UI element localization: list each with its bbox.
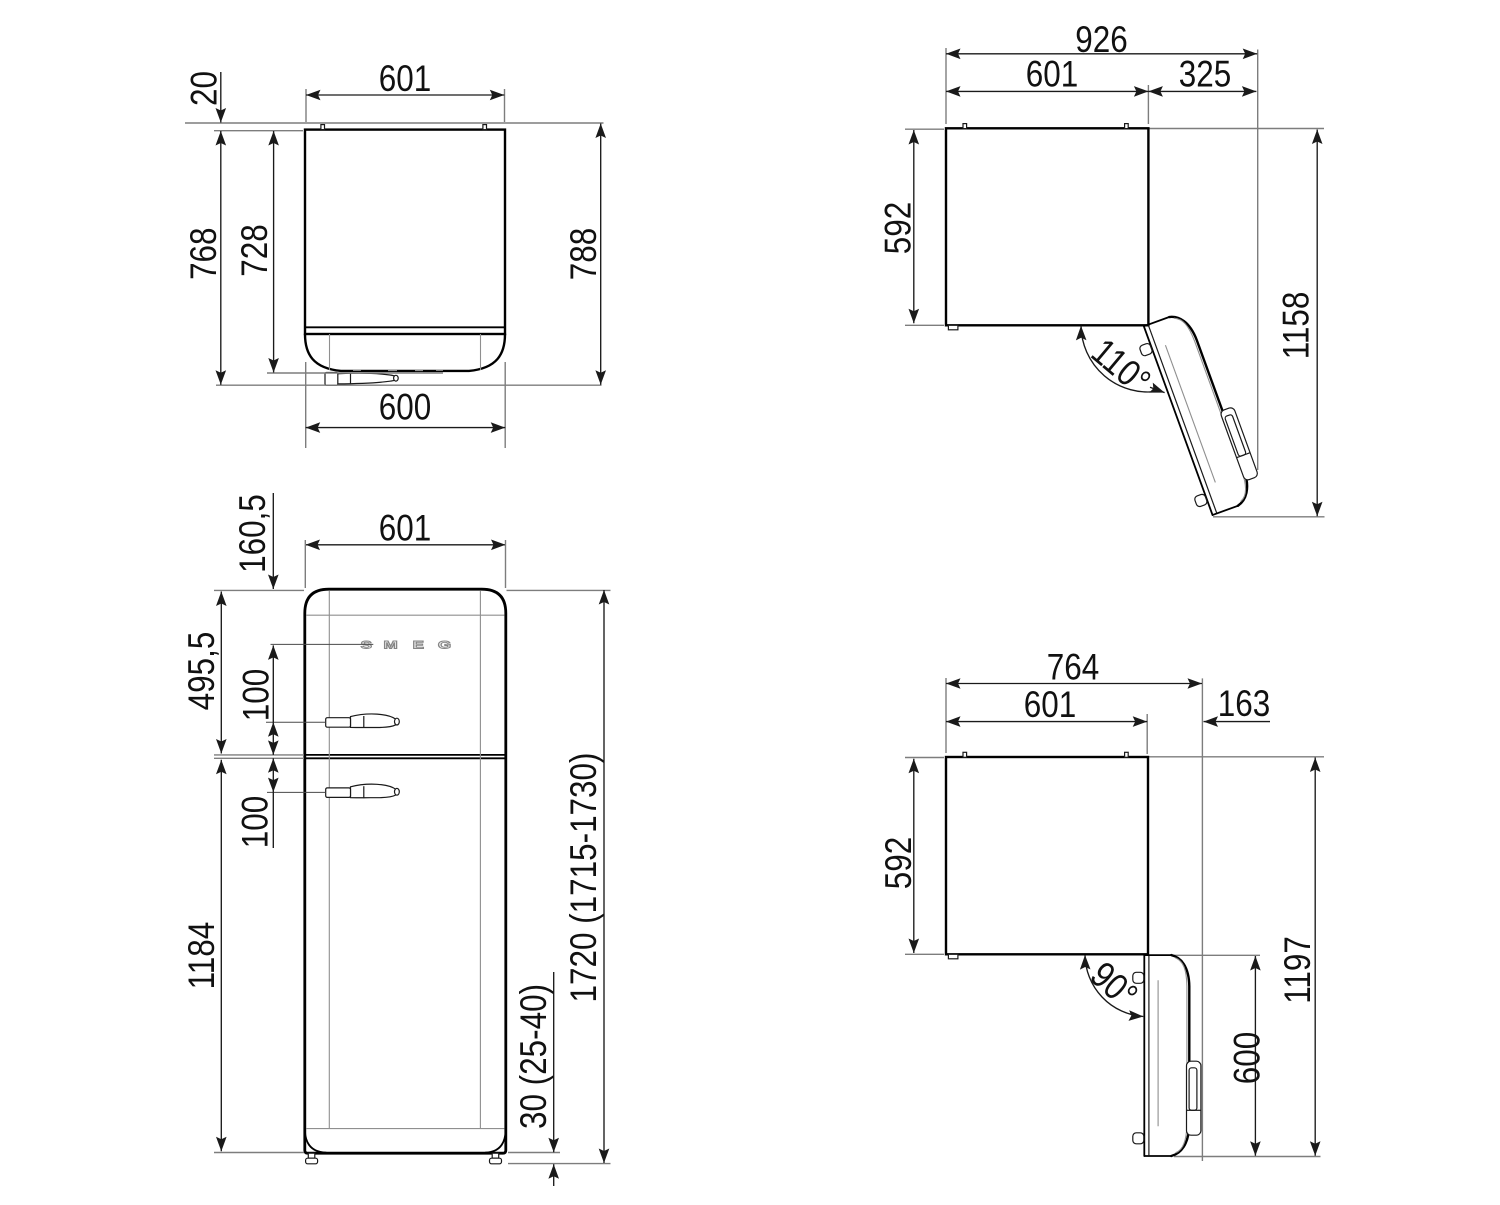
svg-text:495,5: 495,5 [182,632,223,711]
svg-text:1720 (1715-1730): 1720 (1715-1730) [563,753,604,1003]
svg-text:1197: 1197 [1277,936,1318,1004]
svg-text:1184: 1184 [182,922,223,990]
svg-text:768: 768 [183,227,224,279]
svg-text:601: 601 [379,508,431,549]
svg-text:600: 600 [379,387,431,428]
svg-text:20: 20 [184,71,225,106]
svg-text:592: 592 [879,837,920,889]
svg-text:100: 100 [236,669,277,721]
svg-text:30 (25-40): 30 (25-40) [514,984,555,1129]
svg-text:325: 325 [1179,54,1231,95]
svg-text:600: 600 [1227,1032,1268,1084]
svg-text:926: 926 [1075,20,1127,61]
svg-text:788: 788 [564,228,605,280]
svg-text:M: M [384,639,398,651]
svg-text:G: G [438,639,451,651]
svg-text:728: 728 [235,224,276,276]
svg-text:E: E [413,639,424,651]
svg-text:764: 764 [1047,647,1099,688]
svg-text:601: 601 [379,59,431,100]
svg-text:601: 601 [1024,685,1076,726]
svg-text:100: 100 [235,796,276,848]
svg-text:592: 592 [878,202,919,254]
svg-text:163: 163 [1218,684,1270,725]
svg-text:601: 601 [1026,54,1078,95]
svg-text:1158: 1158 [1276,292,1317,360]
svg-text:90°: 90° [1082,954,1145,1016]
svg-text:160,5: 160,5 [232,494,273,573]
svg-text:S: S [361,639,372,651]
